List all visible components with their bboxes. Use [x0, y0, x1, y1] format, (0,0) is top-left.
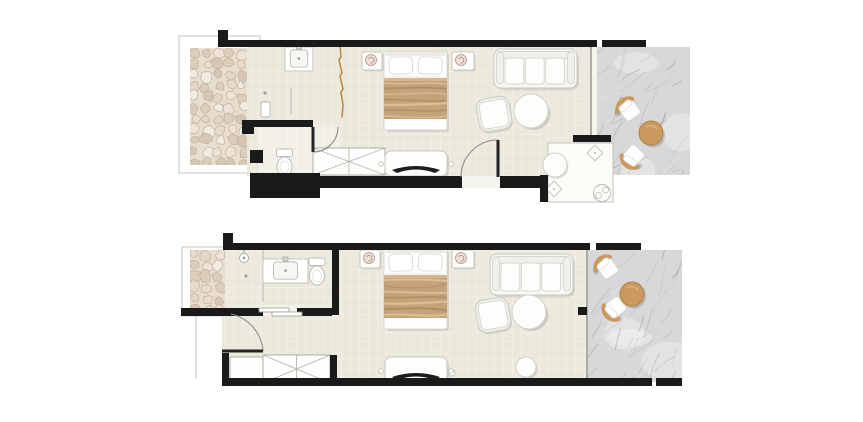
- sofa: [490, 254, 575, 298]
- double-bed: [384, 51, 449, 132]
- toilet: [277, 149, 293, 176]
- shower-shelf: [261, 102, 270, 117]
- outdoor-shower-fixture: [594, 185, 611, 202]
- tv-console: [379, 151, 454, 178]
- washbasin: [285, 45, 313, 71]
- sofa: [494, 49, 579, 91]
- nightstand-right: [452, 250, 476, 270]
- screenshot-root: [0, 0, 863, 422]
- nightstand-left: [362, 52, 384, 72]
- toilet: [309, 258, 325, 285]
- lower-room-plan: [181, 233, 701, 401]
- entrance-threshold: [462, 176, 500, 188]
- nightstand-right: [452, 52, 476, 72]
- floor-plan-svg: [0, 0, 863, 422]
- washbasin: [263, 257, 308, 283]
- wardrobe: [313, 148, 385, 175]
- floor-drain: [245, 275, 248, 278]
- pebble-paving: [187, 47, 251, 170]
- double-bed: [384, 248, 449, 331]
- nightstand-left: [360, 250, 382, 270]
- floor-drain: [264, 92, 267, 95]
- floor-plan-image: [0, 0, 863, 422]
- luggage-bench: [230, 357, 263, 381]
- upper-room-plan: [179, 30, 700, 202]
